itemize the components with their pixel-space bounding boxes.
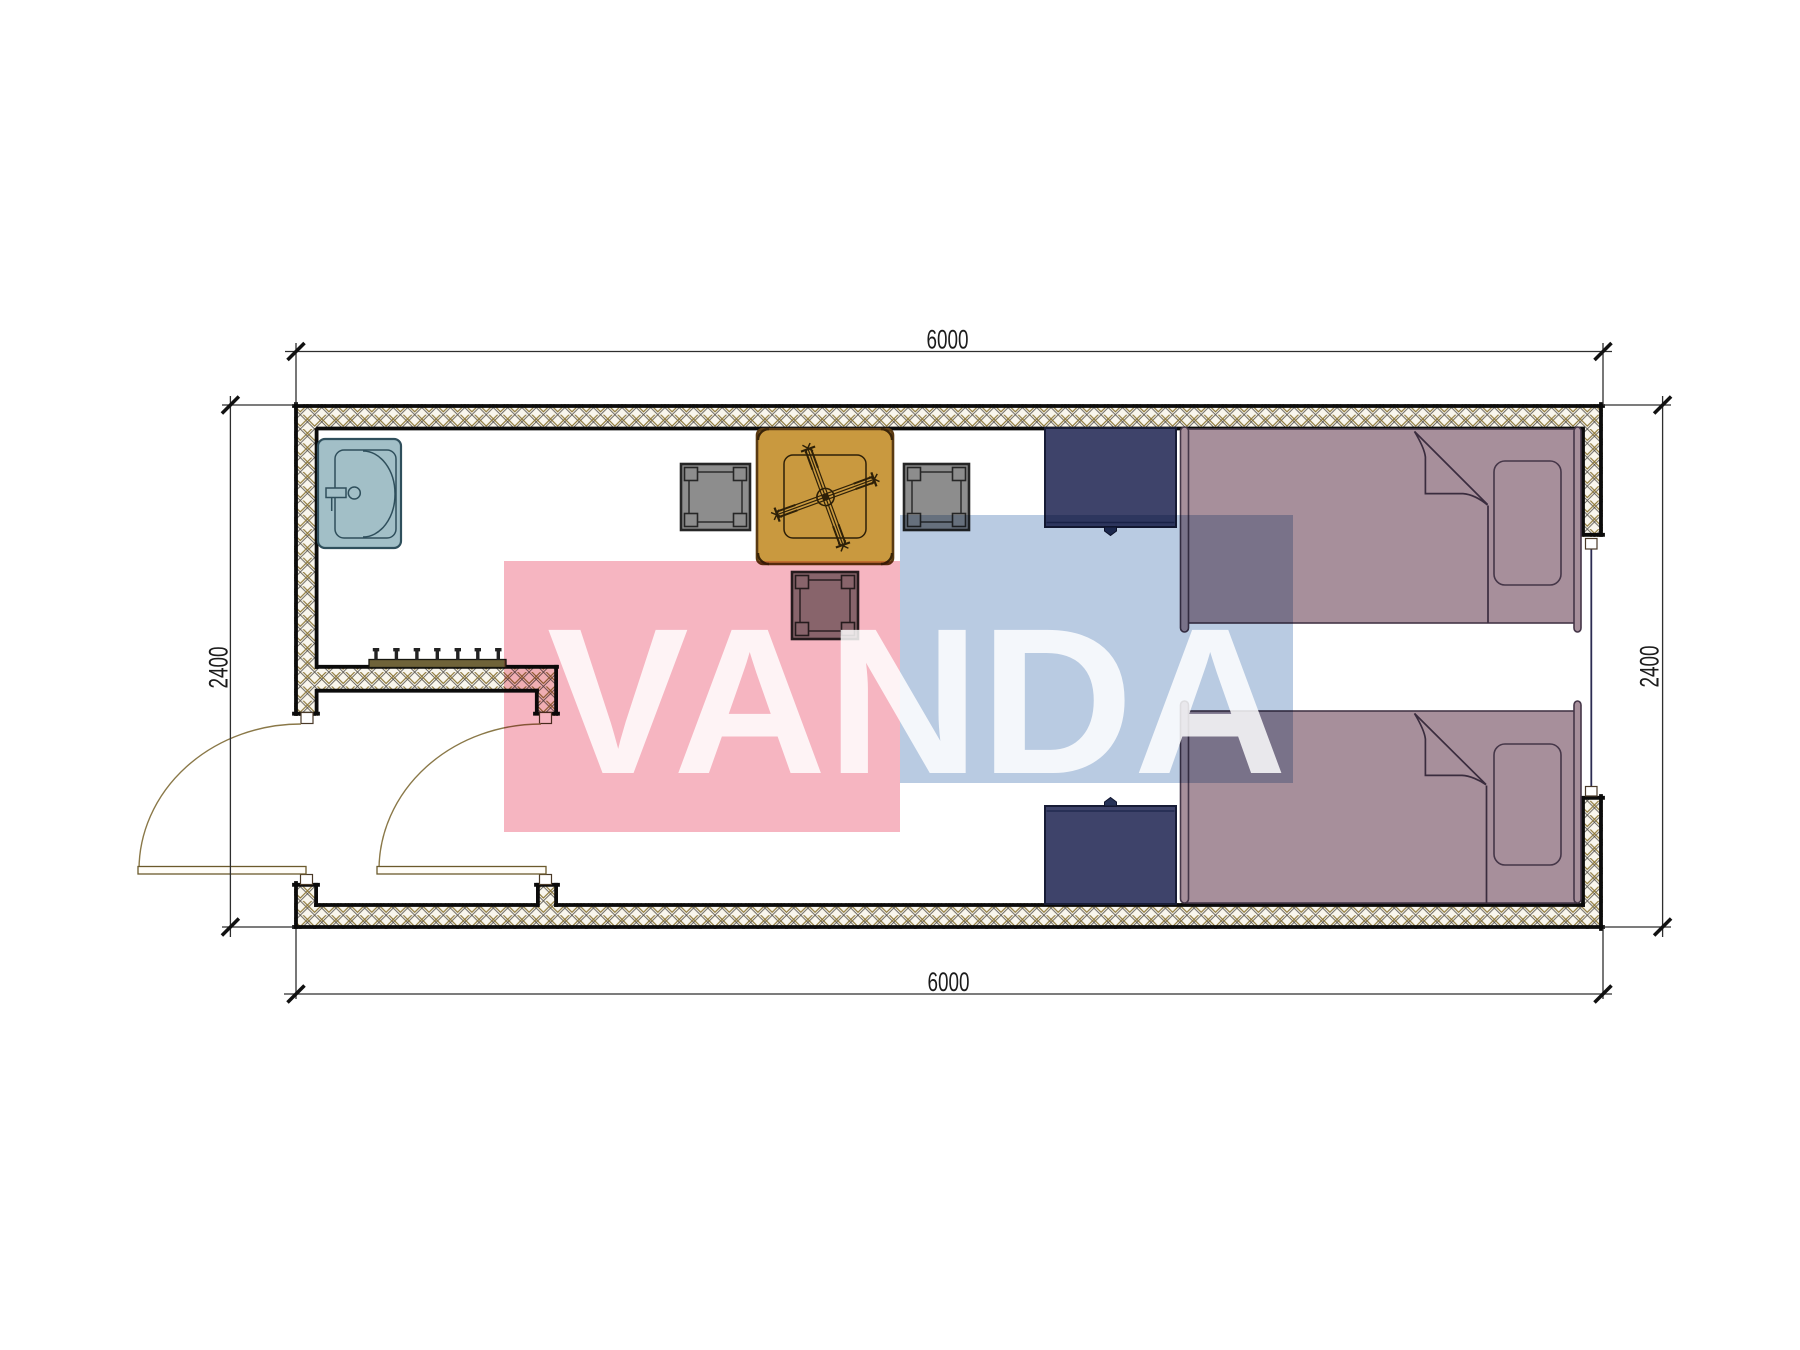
svg-text:6000: 6000 [927,325,969,355]
svg-text:6000: 6000 [928,967,970,997]
svg-text:2400: 2400 [204,647,234,689]
svg-text:VANDA: VANDA [547,586,1287,818]
svg-text:2400: 2400 [1635,646,1665,688]
